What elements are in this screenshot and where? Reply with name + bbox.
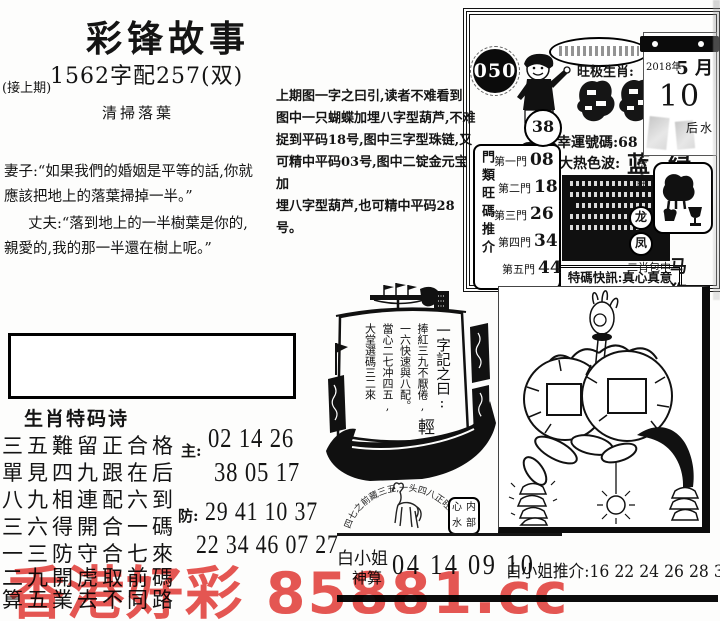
fine-print-row [576, 203, 664, 208]
inner-tip-char: 心 [450, 501, 464, 517]
verse-column: 一六快速與八配。 [397, 323, 413, 437]
guard-label: 防: [178, 505, 199, 526]
lottery-tip-sheet: 彩锋故事 1562字配257(双) (接上期) 清掃落葉 妻子:“如果我們的婚姻… [0, 0, 720, 621]
verse-column: 大堂選碼三二來 [362, 323, 378, 437]
inner-tip-box: 心 内 水 部 [448, 497, 480, 535]
right-note: 后水 [686, 119, 714, 136]
gate-value: 18 [534, 177, 558, 197]
inner-tip-char: 部 [464, 517, 478, 533]
calendar-hole [652, 41, 658, 47]
poem-line: 八九相連配六到 [2, 484, 177, 514]
analysis-line: 捉到平码18号,图中三字型珠链,又 [276, 130, 476, 152]
verse-column: 當心二七冲四五, [379, 323, 395, 437]
inner-tip-char: 水 [450, 517, 464, 533]
gate-value: 34 [534, 231, 558, 251]
gate-label: 第五門 [502, 263, 535, 276]
analysis-block: 上期图一字之曰引,读者不难看到 图中一只蝴蝶加埋八字型葫芦,不难 捉到平码18号… [276, 86, 476, 240]
watermark: 香港好彩 85881.cc [8, 548, 569, 621]
poem-line: 單見四九跟在后 [2, 457, 177, 487]
hot-color-label: 大热色波: [559, 153, 620, 173]
calendar: 2018年 5 月 10 后水 [643, 32, 717, 156]
gate-value: 26 [530, 204, 554, 224]
poem-title: 生肖特码诗 [24, 404, 129, 431]
motto-char: 輕 [418, 413, 435, 438]
gate-label: 第三門 [494, 209, 527, 222]
story-line: 親愛的,我的那一半還在樹上呢。” [4, 237, 212, 258]
lottery-card: 050 38 旺极生肖: [463, 8, 720, 292]
continued-note: (接上期) [2, 77, 51, 96]
scan-noise [713, 0, 720, 300]
ship-panel: 四七之前藏三五,一头四八正旺座 一字記之曰: 捧紅三九不厭倦, 一六快速與八配。… [322, 283, 498, 535]
gate-row: 第二門18 [498, 177, 558, 197]
gate-label: 第一門 [494, 155, 527, 168]
poem-line: 三六得開合一碼 [2, 511, 177, 541]
noble-circle: 龙 [629, 206, 653, 230]
story-line: 丈夫:“落到地上的一半樹葉是你的, [28, 212, 248, 233]
lucky-number-line: 幸運號碼:68 [557, 132, 638, 152]
coin-creature-panel [498, 286, 710, 533]
main-numbers-line: 02 14 26 [208, 423, 294, 454]
analysis-line: 图中一只蝴蝶加埋八字型葫芦,不难 [276, 108, 476, 130]
analysis-line: 上期图一字之曰引,读者不难看到 [276, 86, 476, 108]
animal-silhouettes [656, 165, 708, 229]
ball-number: 38 [524, 109, 562, 147]
main-label: 主: [181, 440, 202, 461]
main-numbers-line: 38 05 17 [214, 457, 300, 488]
motto-column: 一字記之曰: [432, 323, 453, 437]
fine-print-row [570, 181, 664, 186]
gate-value: 08 [530, 150, 554, 170]
noble-label: 贵人助 [633, 158, 649, 202]
gate-row: 第四門34 [498, 231, 558, 251]
gate-label: 第二門 [498, 182, 531, 195]
bottom-divider [337, 533, 562, 536]
gate-label: 第四門 [498, 236, 531, 249]
gate-value: 44 [538, 258, 562, 278]
calendar-band [640, 36, 719, 52]
guard-numbers-line: 29 41 10 37 [205, 497, 318, 527]
svg-text:四七之前藏三五,一头四八正旺座: 四七之前藏三五,一头四八正旺座 [343, 483, 460, 530]
analysis-line: 可精中平码03号,图中二锭金元宝加 [276, 152, 476, 196]
story-line: 妻子:“如果我們的婚姻是平等的話,你就 [4, 160, 253, 181]
blank-box [8, 333, 296, 399]
story-title: 清掃落葉 [102, 102, 174, 123]
issue-line: 1562字配257(双) [50, 58, 243, 90]
gate-row: 第五門44 [502, 258, 562, 278]
scan-noise [646, 116, 669, 150]
noble-circle: 凤 [629, 232, 653, 256]
calendar-month: 5 月 [676, 54, 713, 80]
animal-silhouette-box [653, 162, 713, 234]
gate-row: 第一門08 [494, 150, 554, 170]
page-title: 彩锋故事 [86, 10, 250, 62]
coin-creature-illustration [499, 287, 702, 526]
poem-line: 三五難留正合格 [2, 430, 177, 460]
analysis-line: 埋八字型葫芦,也可精中平码28号。 [276, 196, 476, 240]
two-zodiac-label: 二肖包中 [627, 259, 671, 275]
gate-row: 第三門26 [494, 204, 554, 224]
story-line: 應該把地上的落葉掃掉一半。” [4, 185, 193, 206]
sail-verse: 一字記之曰: 捧紅三九不厭倦, 一六快速與八配。 當心二七冲四五, 大堂選碼三二… [360, 323, 455, 437]
inner-tip-char: 内 [464, 501, 478, 517]
arch-text: 四七之前藏三五,一头四八正旺座 [343, 483, 460, 530]
fine-print-row [570, 225, 640, 230]
calendar-hole [698, 41, 704, 47]
calendar-day: 10 [644, 79, 716, 114]
scribble-text [559, 46, 639, 56]
